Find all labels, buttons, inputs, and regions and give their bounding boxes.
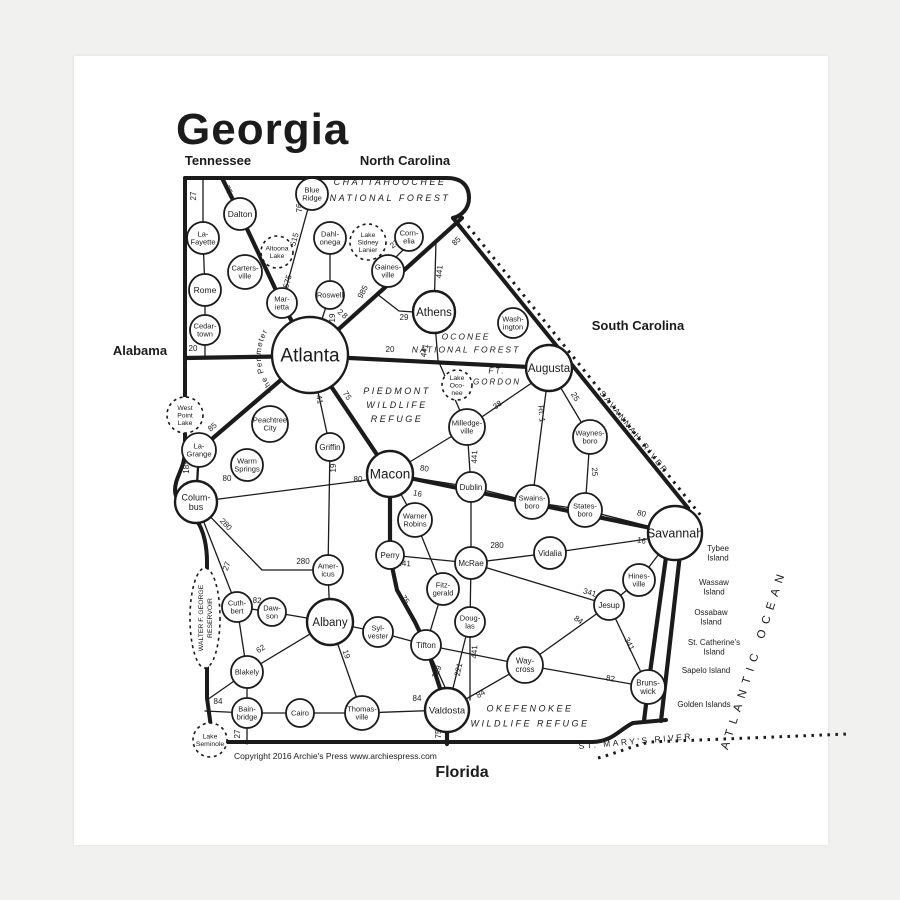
road-label-441: 441 [434,264,444,279]
road-label-29: 29 [400,313,409,322]
road-label-20: 20 [386,345,395,354]
road-label-84: 84 [572,614,585,627]
road-label-84: 84 [413,694,422,703]
neighbor-label-tennessee: Tennessee [185,153,251,168]
road-label-575: 575 [282,273,294,289]
road-label-84: 84 [475,687,488,700]
city-blakely-label: Blakely [235,668,259,677]
city-macon-label: Macon [370,467,411,482]
road-label-20: 20 [189,344,198,353]
road-label-19: 19 [329,463,338,472]
neighbor-label-north-carolina: North Carolina [360,153,451,168]
city-atlanta-label: Atlanta [280,346,340,367]
walter-f-george-reservoir-shape [190,568,220,668]
georgia-map-print: The Perimeter285277576515575238598544129… [0,0,900,900]
road-label-41: 41 [314,394,325,405]
city-valdosta-label: Valdosta [429,705,466,716]
city-washington-label: Wash-ington [502,315,524,332]
region-label-ft-: FT.GORDON [473,366,521,386]
road-label-441: 441 [470,450,479,464]
city-augusta-label: Augusta [528,363,571,375]
road-label-Rt-1: Rt. 1 [536,405,547,423]
city-jesup-label: Jesup [598,601,620,610]
road-label-27: 27 [233,729,242,738]
city-albany-label: Albany [312,617,347,629]
neighbor-label-alabama: Alabama [113,343,168,358]
road-label-16: 16 [412,488,423,499]
road-label-221: 221 [453,661,465,676]
road-label-85: 85 [450,234,463,247]
city-cairo-label: Cairo [291,709,309,718]
island-label-wassaw: WassawIsland [699,578,729,597]
neighbor-label-south-carolina: South Carolina [592,318,685,333]
city-tifton-label: Tifton [416,641,436,650]
island-label-golden-islands: Golden Islands [677,700,730,709]
road-label-82: 82 [605,673,616,684]
road-label-25: 25 [590,467,600,477]
water-label-atlantic-ocean: ATLANTIC OCEAN [719,567,789,751]
city-dublin-label: Dublin [460,483,483,492]
city-athens-label: Athens [416,307,452,319]
region-label-piedmont: PIEDMONTWILDLIFEREFUGE [363,386,431,424]
road-label-25: 25 [569,391,582,404]
region-label-chattahoochee: CHATTAHOOCHEENATIONAL FOREST [330,177,451,203]
city-bainbridge-label: Bain-bridge [237,705,258,722]
city-warm-springs-label: WarmSprings [234,457,260,474]
city-warner-robins-label: WarnerRobins [403,512,428,529]
city-savannah-label: Savannah [647,526,703,540]
road-label-27: 27 [189,191,198,200]
west-point-lake-label: WestPointLake [177,405,193,427]
city-rome-label: Rome [194,285,217,295]
city-dahlonega-label: Dahl-onega [320,230,342,247]
road-label-280: 280 [218,516,234,532]
road-label-280: 280 [296,557,310,566]
road-label-280: 280 [490,541,504,550]
island-label-tybee: TybeeIsland [707,544,729,563]
island-label-sapelo-island: Sapelo Island [682,666,730,675]
island-label-ossabaw: OssabawIsland [694,608,728,627]
city-roswell-label: Roswell [317,291,344,300]
georgia-map-photo: The Perimeter285277576515575238598544129… [0,0,900,900]
road-label-62: 62 [255,642,268,655]
island-label-st-catherine-s: St. Catherine'sIsland [688,638,740,657]
city-perry-label: Perry [380,551,399,560]
city-blue-ridge-label: BlueRidge [302,186,322,203]
road-label-27: 27 [221,560,233,572]
road-label-80: 80 [223,474,232,483]
city-waycross-label: Way-cross [515,656,534,674]
page-title: Georgia [176,105,349,154]
city-griffin-label: Griffin [319,443,340,452]
road-label-80: 80 [354,475,363,484]
road-label-441: 441 [470,645,479,659]
city-dalton-label: Dalton [228,209,253,219]
road-label-80: 80 [636,508,647,519]
neighbor-label-florida: Florida [435,764,488,781]
road-us29 [377,294,414,312]
road-label-985: 985 [356,283,370,299]
road-label-16: 16 [636,535,647,546]
water-label-st-mary-s-river: ST. MARY'S RIVER [578,731,693,751]
road-label-85: 85 [206,420,219,433]
water-label-savannah-river: SAVANNAH RIVER [598,389,671,476]
road-label-341: 341 [622,636,636,652]
road-label-80: 80 [419,463,430,473]
city-mcrae-label: McRae [458,559,484,568]
copyright-text: Copyright 2016 Archie's Press www.archie… [234,751,437,761]
region-label-okefenokee: OKEFENOKEEWILDLIFE REFUGE [470,704,589,729]
city-vidalia-label: Vidalia [538,549,562,558]
city-marietta-label: Mar-ietta [274,295,290,312]
road-label-84: 84 [214,697,223,706]
lake-oconee-label: LakeOco-nee [450,375,465,397]
